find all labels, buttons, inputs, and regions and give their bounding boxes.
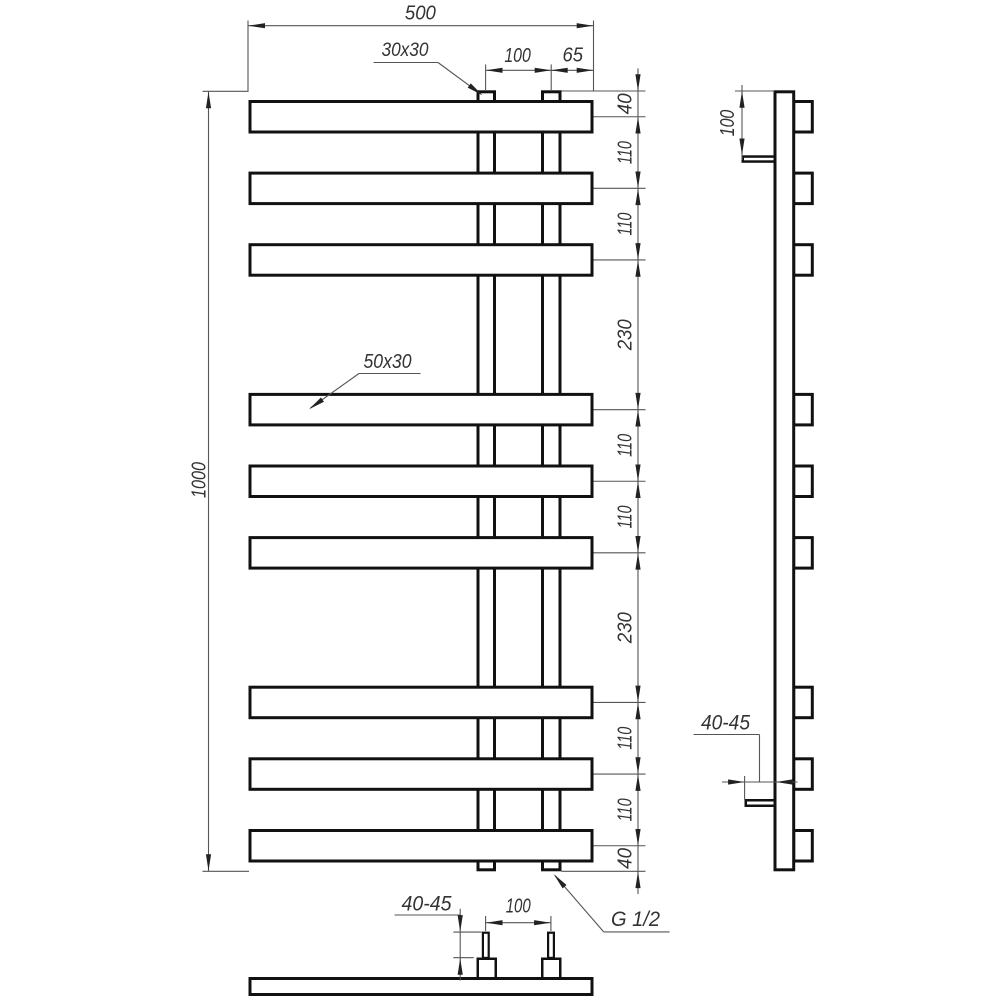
svg-text:100: 100 bbox=[717, 109, 739, 136]
svg-text:100: 100 bbox=[504, 45, 531, 67]
svg-text:500: 500 bbox=[405, 2, 437, 24]
svg-text:30x30: 30x30 bbox=[382, 40, 429, 61]
svg-text:230: 230 bbox=[615, 612, 637, 645]
svg-text:65: 65 bbox=[563, 44, 584, 66]
svg-text:G 1/2: G 1/2 bbox=[611, 908, 660, 931]
svg-text:110: 110 bbox=[615, 141, 637, 164]
svg-text:40-45: 40-45 bbox=[701, 712, 750, 735]
svg-text:40: 40 bbox=[615, 93, 637, 115]
svg-text:50x30: 50x30 bbox=[364, 351, 413, 373]
svg-text:110: 110 bbox=[615, 212, 637, 235]
svg-text:110: 110 bbox=[615, 433, 637, 456]
svg-text:40-45: 40-45 bbox=[402, 893, 452, 916]
svg-text:110: 110 bbox=[615, 726, 637, 749]
svg-text:110: 110 bbox=[615, 505, 637, 528]
svg-text:100: 100 bbox=[506, 896, 531, 918]
svg-text:110: 110 bbox=[615, 798, 637, 821]
svg-text:230: 230 bbox=[615, 319, 637, 352]
svg-text:40: 40 bbox=[615, 847, 637, 869]
svg-text:1000: 1000 bbox=[189, 461, 211, 498]
